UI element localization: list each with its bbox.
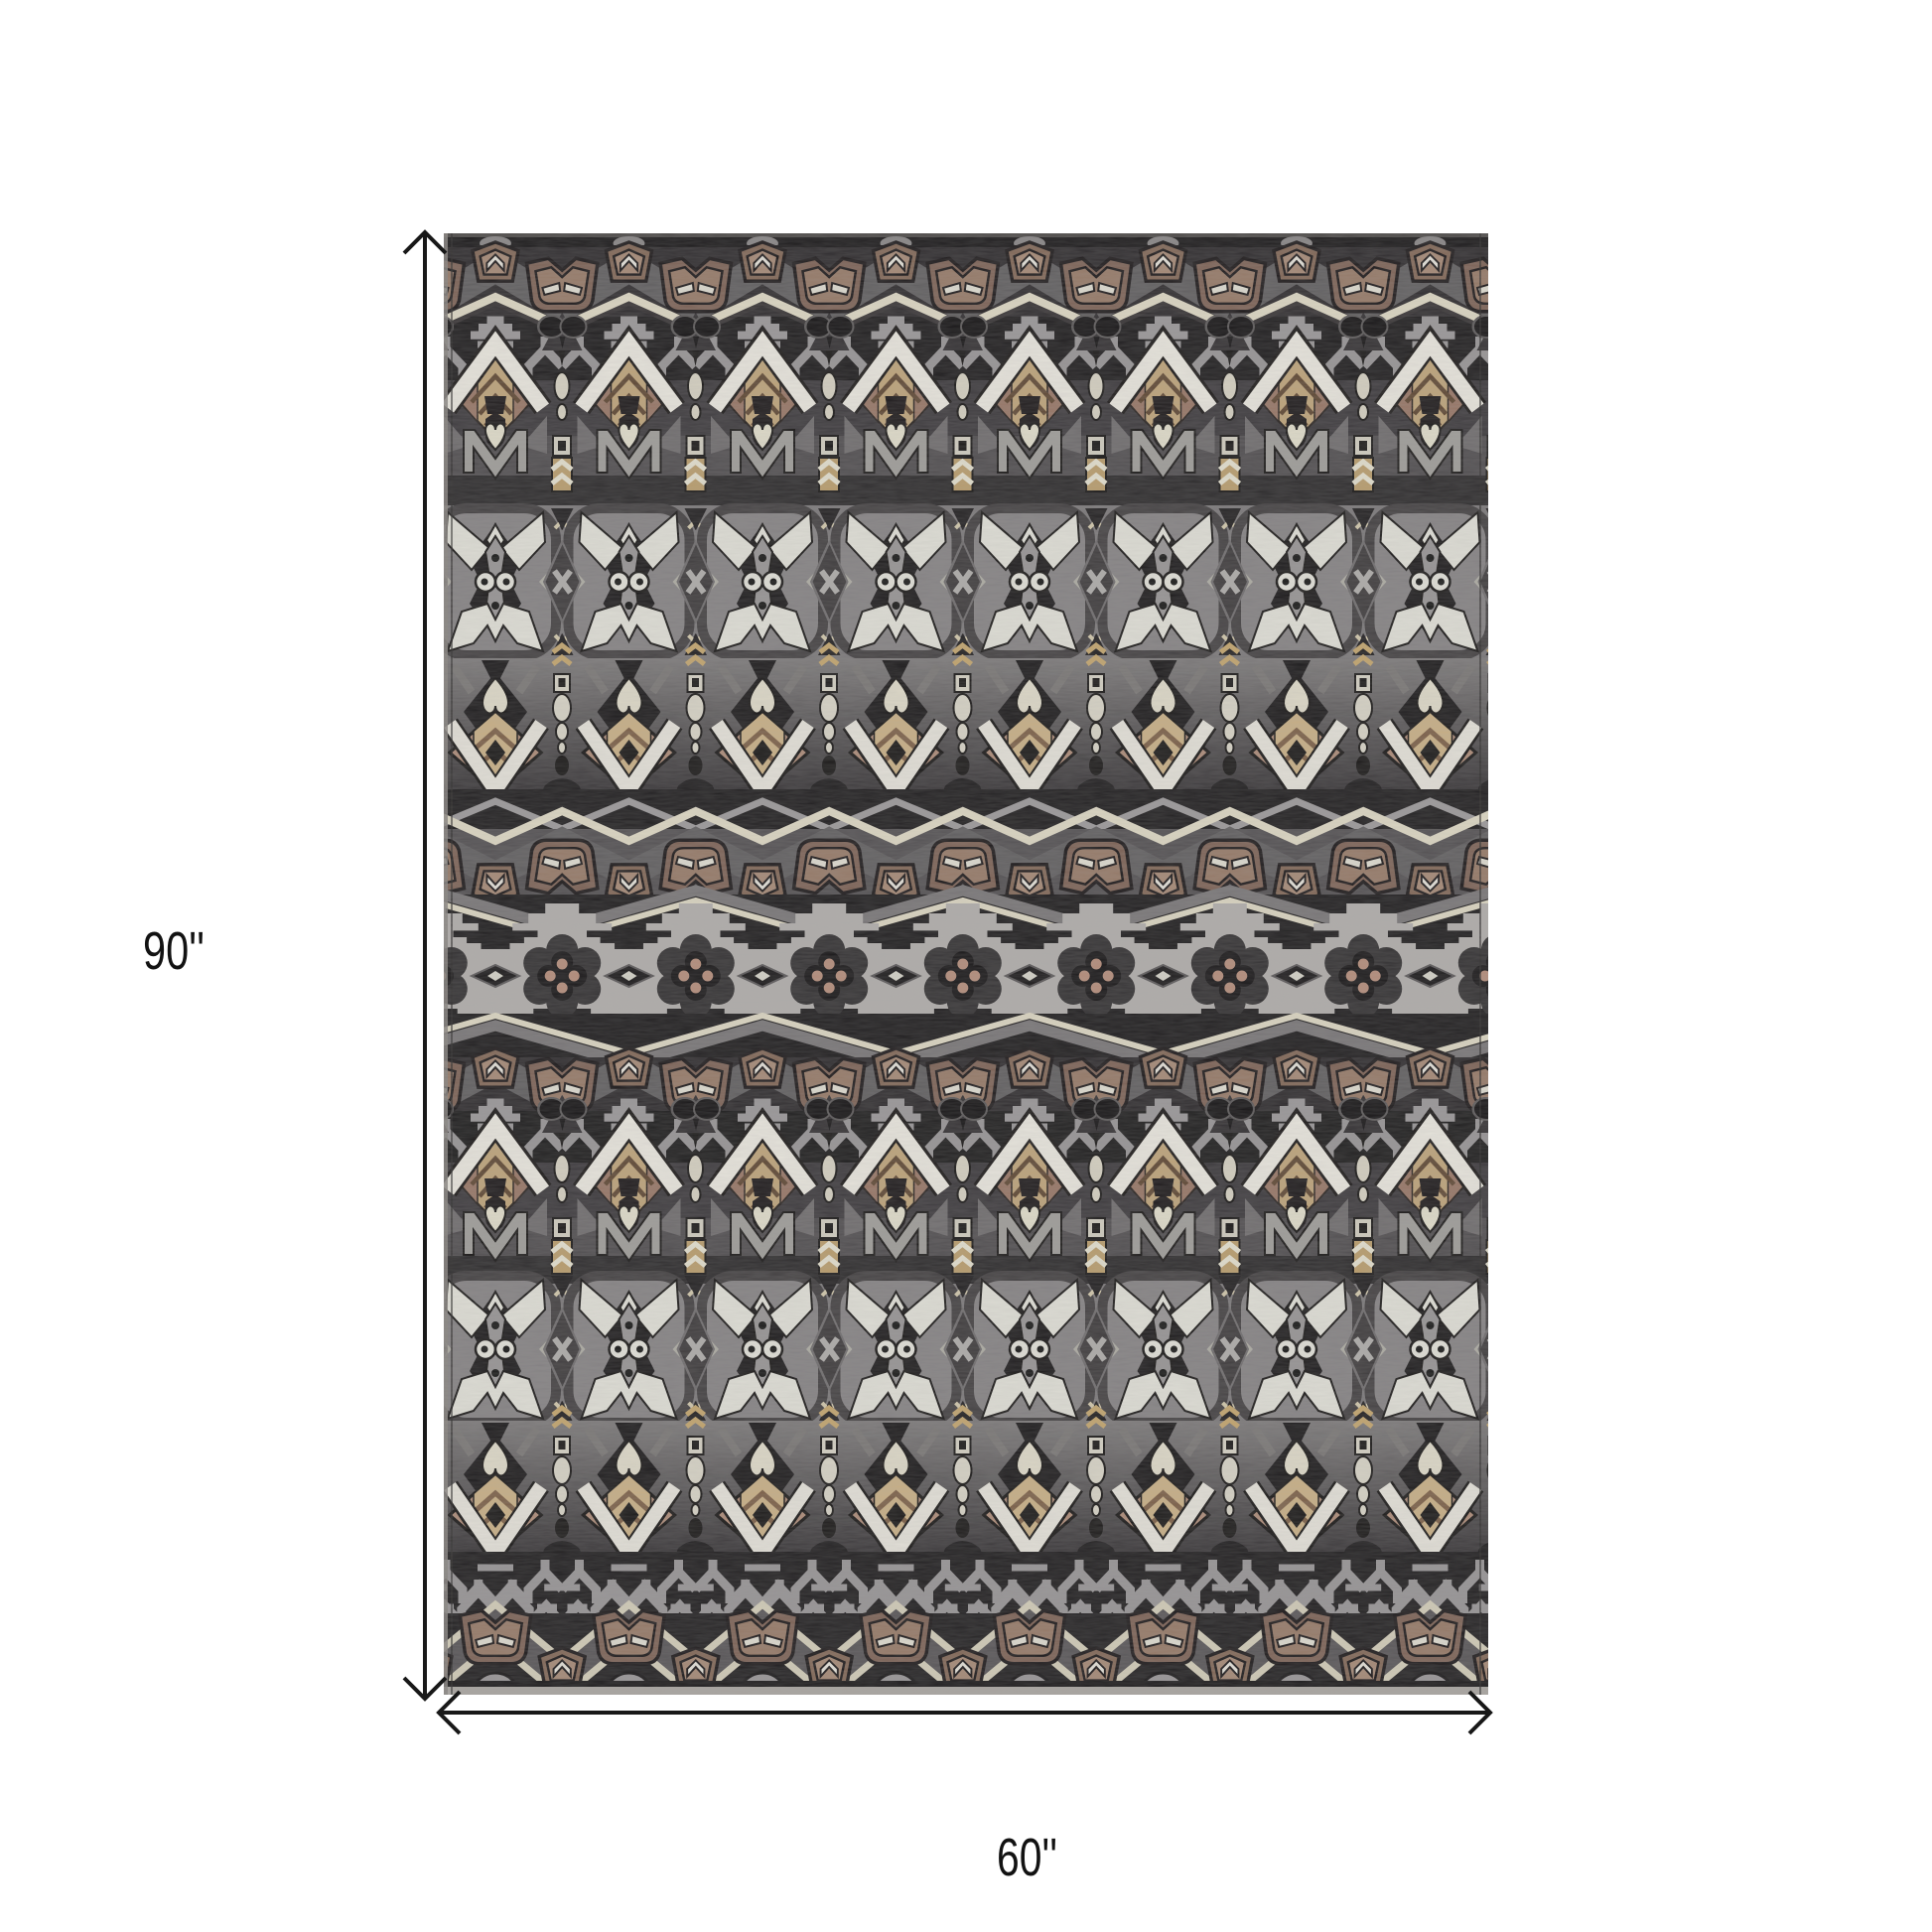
svg-text:60'': 60'' [997, 1828, 1057, 1887]
svg-text:90'': 90'' [143, 921, 205, 981]
